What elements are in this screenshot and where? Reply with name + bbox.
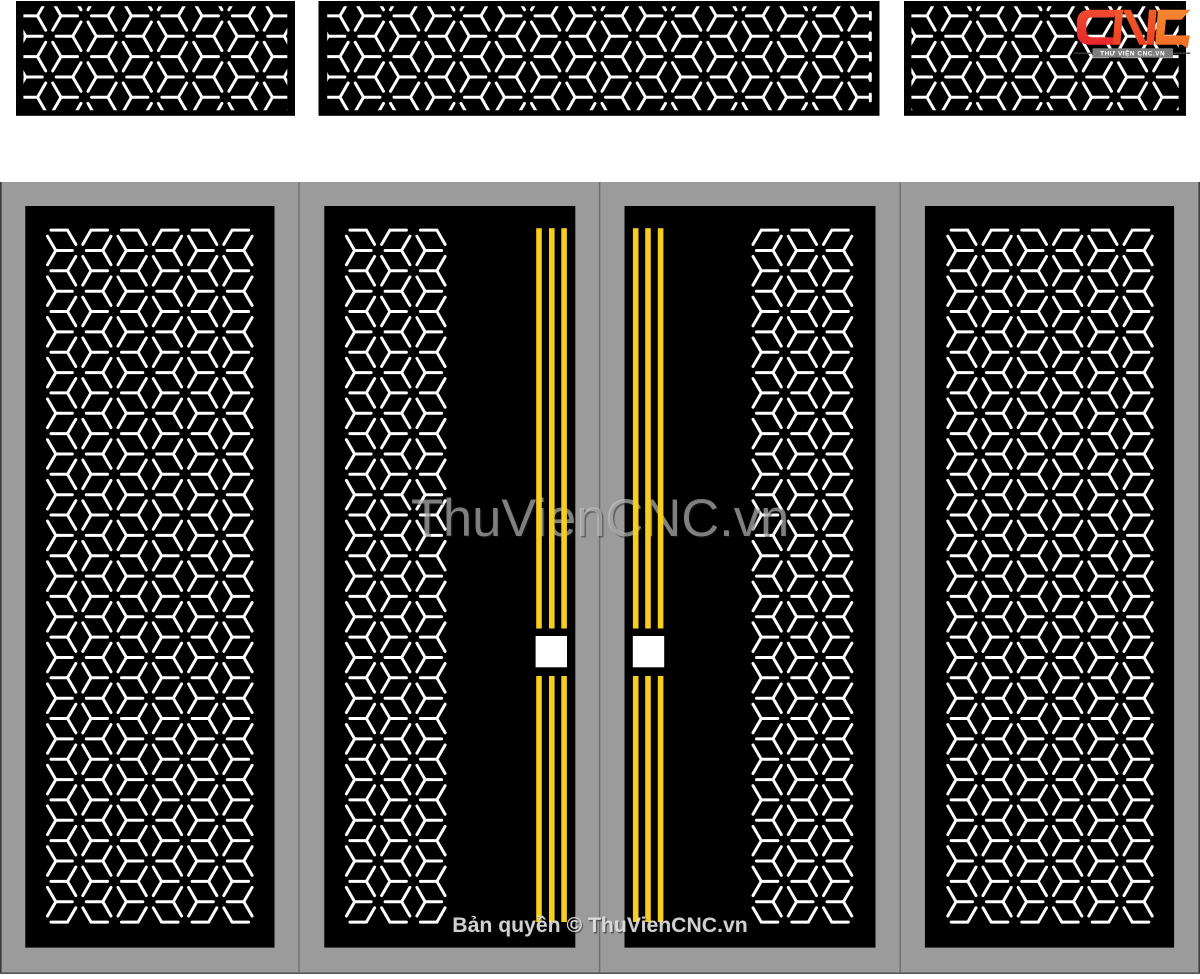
svg-text:Bản quyền © ThuVienCNC.vn: Bản quyền © ThuVienCNC.vn [452, 914, 747, 937]
svg-text:ThuVienCNC.vn: ThuVienCNC.vn [411, 489, 789, 548]
svg-text:THƯ VIỆN CNC.VN: THƯ VIỆN CNC.VN [1100, 48, 1165, 57]
